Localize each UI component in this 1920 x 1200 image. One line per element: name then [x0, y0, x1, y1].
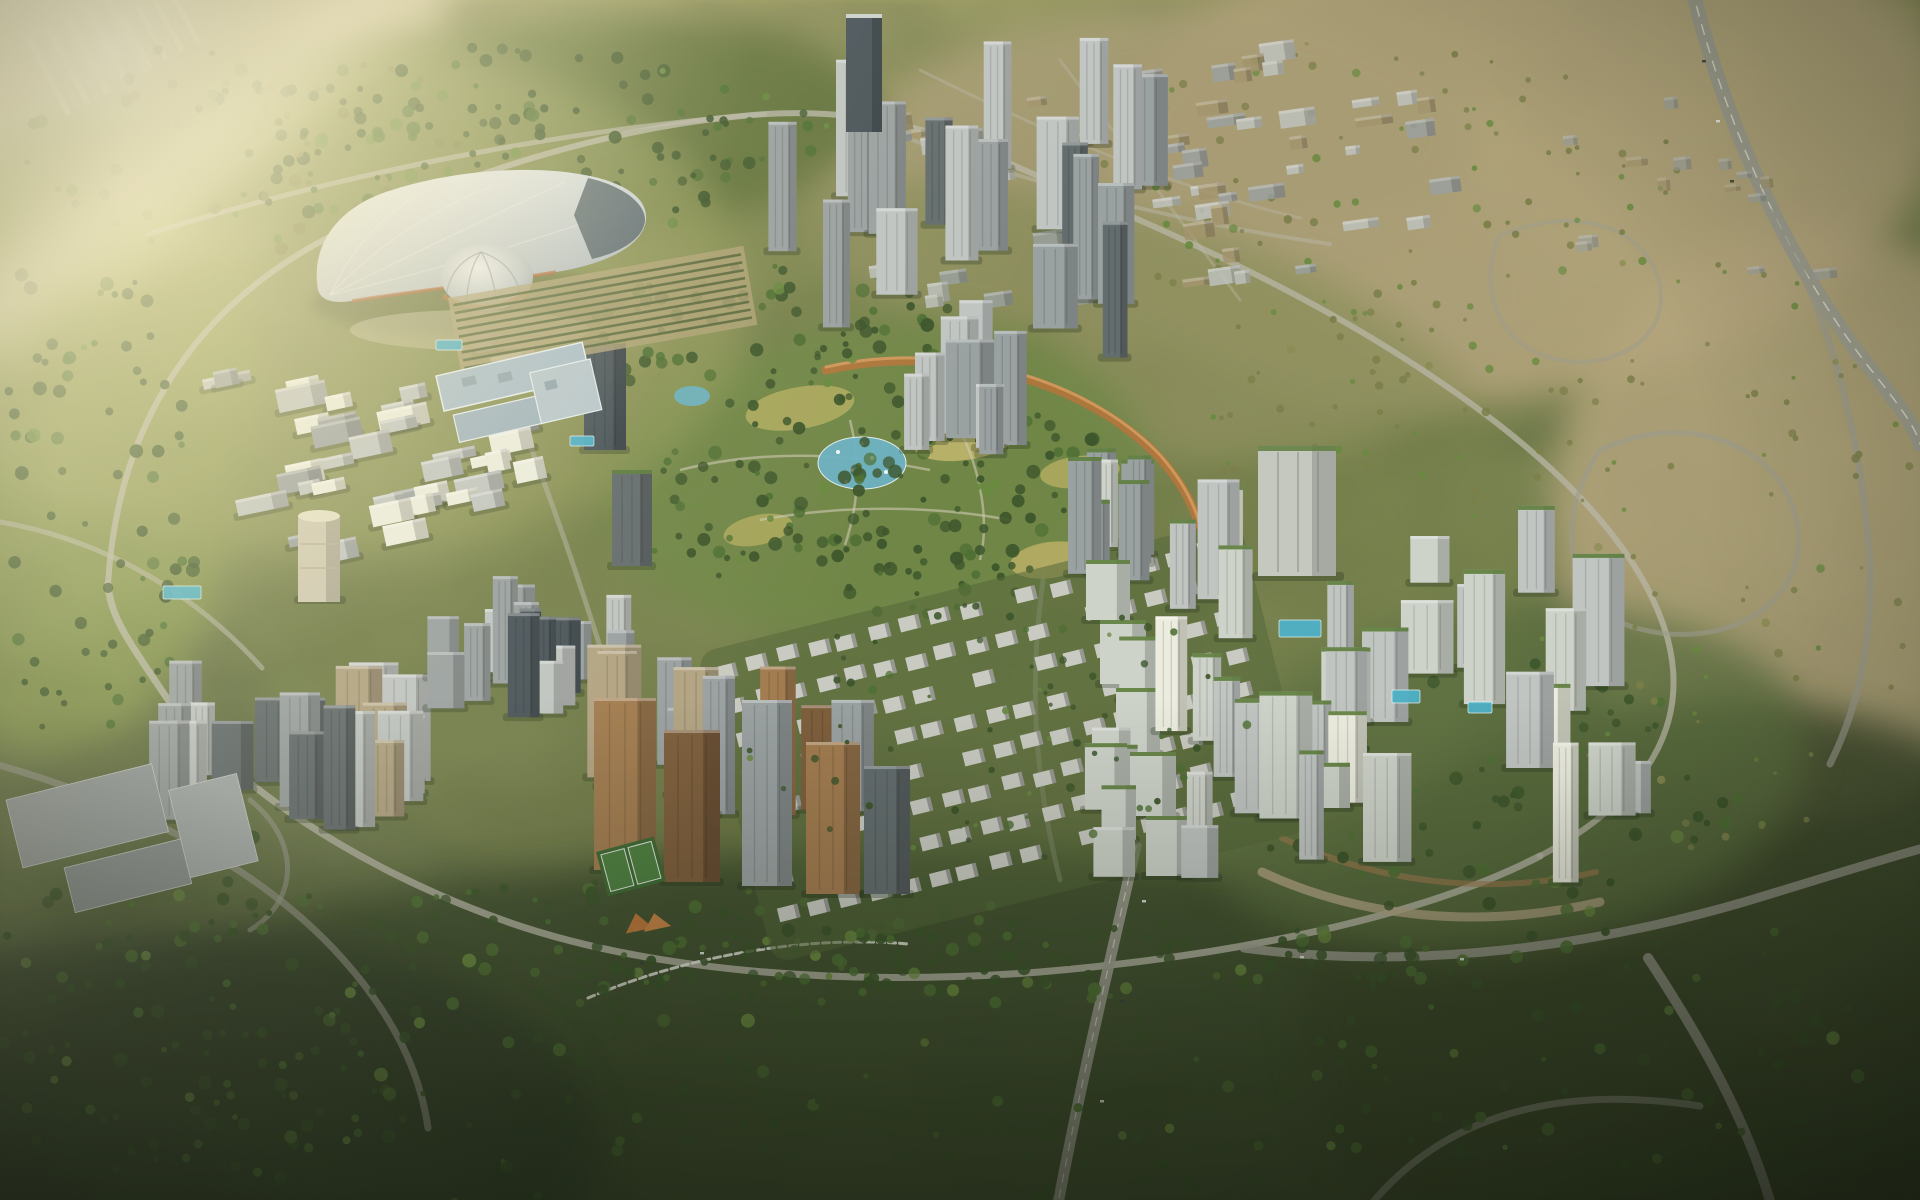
aerial-city-rendering — [0, 0, 1920, 1200]
vignette-bottom — [0, 0, 1920, 1200]
scene-canvas — [0, 0, 1920, 1200]
